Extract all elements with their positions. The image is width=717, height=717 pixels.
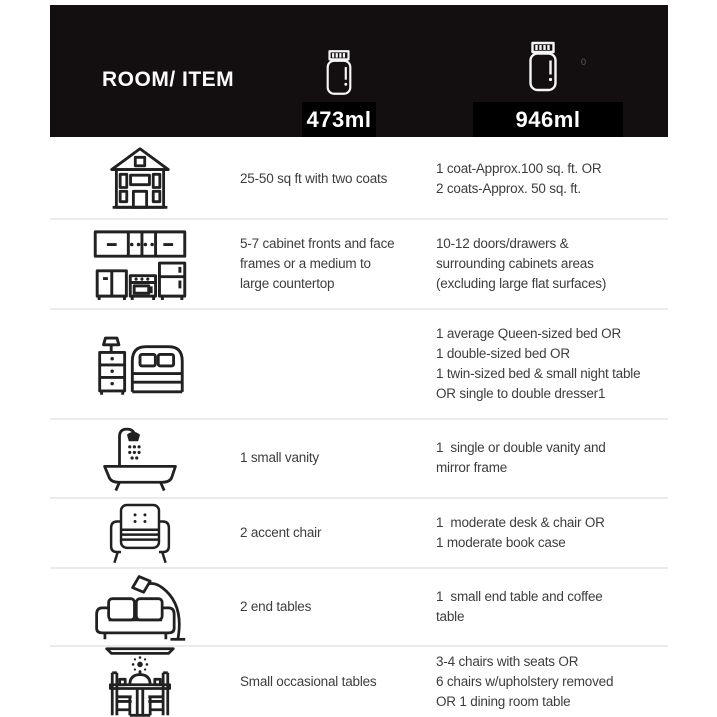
room-item-heading: ROOM/ ITEM: [102, 68, 234, 92]
kitchen-cabinets-icon: [91, 228, 189, 300]
sofa-floor-lamp-icon: [92, 571, 188, 643]
table-row-dining: Small occasional tables 3-4 chairs with …: [50, 646, 668, 717]
coverage-946-text: 10-12 doors/drawers & surrounding cabine…: [436, 234, 606, 294]
coverage-946-text: 1 single or double vanity and mirror fra…: [436, 438, 606, 478]
row-icon-cell: [50, 646, 230, 717]
size-946-badge: 946ml: [473, 102, 623, 137]
coverage-473-text: 25-50 sq ft with two coats: [240, 169, 387, 189]
table-row-cabinets: 5-7 cabinet fronts and face frames or a …: [50, 219, 668, 308]
coverage-473-text: 2 accent chair: [240, 523, 321, 543]
coverage-946-text: 1 average Queen-sized bed OR 1 double-si…: [436, 324, 640, 404]
table-row-house: 25-50 sq ft with two coats 1 coat-Approx…: [50, 140, 668, 218]
accent-chair-icon: [107, 500, 173, 566]
coverage-473-text: Small occasional tables: [240, 672, 376, 692]
bathtub-shower-icon: [99, 423, 181, 493]
row-icon-cell: [50, 568, 230, 645]
paint-coverage-table: ROOM/ ITEM 473ml 946ml 0: [0, 0, 717, 717]
paint-jar-small-icon: [325, 49, 353, 96]
paint-jar-large-icon: [528, 38, 558, 95]
row-icon-cell: [50, 309, 230, 418]
row-icon-cell: [50, 140, 230, 218]
table-row-bath: 1 small vanity 1 single or double vanity…: [50, 419, 668, 497]
coverage-946-text: 1 moderate desk & chair OR 1 moderate bo…: [436, 513, 605, 553]
row-icon-cell: [50, 419, 230, 497]
coverage-473-text: 5-7 cabinet fronts and face frames or a …: [240, 234, 394, 294]
coverage-473-text: 2 end tables: [240, 597, 311, 617]
house-icon: [104, 145, 176, 213]
row-icon-cell: [50, 498, 230, 567]
size-473-badge: 473ml: [302, 102, 376, 137]
table-row-sofa: 2 end tables 1 small end table and coffe…: [50, 568, 668, 645]
table-header: ROOM/ ITEM 473ml 946ml 0: [50, 5, 668, 137]
dining-table-icon: [99, 645, 181, 717]
table-row-accent-chair: 2 accent chair 1 moderate desk & chair O…: [50, 498, 668, 567]
coverage-473-text: 1 small vanity: [240, 448, 319, 468]
coverage-946-text: 1 coat-Approx.100 sq. ft. OR 2 coats-App…: [436, 159, 601, 199]
bed-nightstand-icon: [92, 332, 188, 396]
row-icon-cell: [50, 219, 230, 308]
table-row-bed: 1 average Queen-sized bed OR 1 double-si…: [50, 309, 668, 418]
coverage-946-text: 3-4 chairs with seats OR 6 chairs w/upho…: [436, 652, 613, 712]
coverage-946-text: 1 small end table and coffee table: [436, 587, 603, 627]
stray-mark: 0: [581, 57, 586, 67]
